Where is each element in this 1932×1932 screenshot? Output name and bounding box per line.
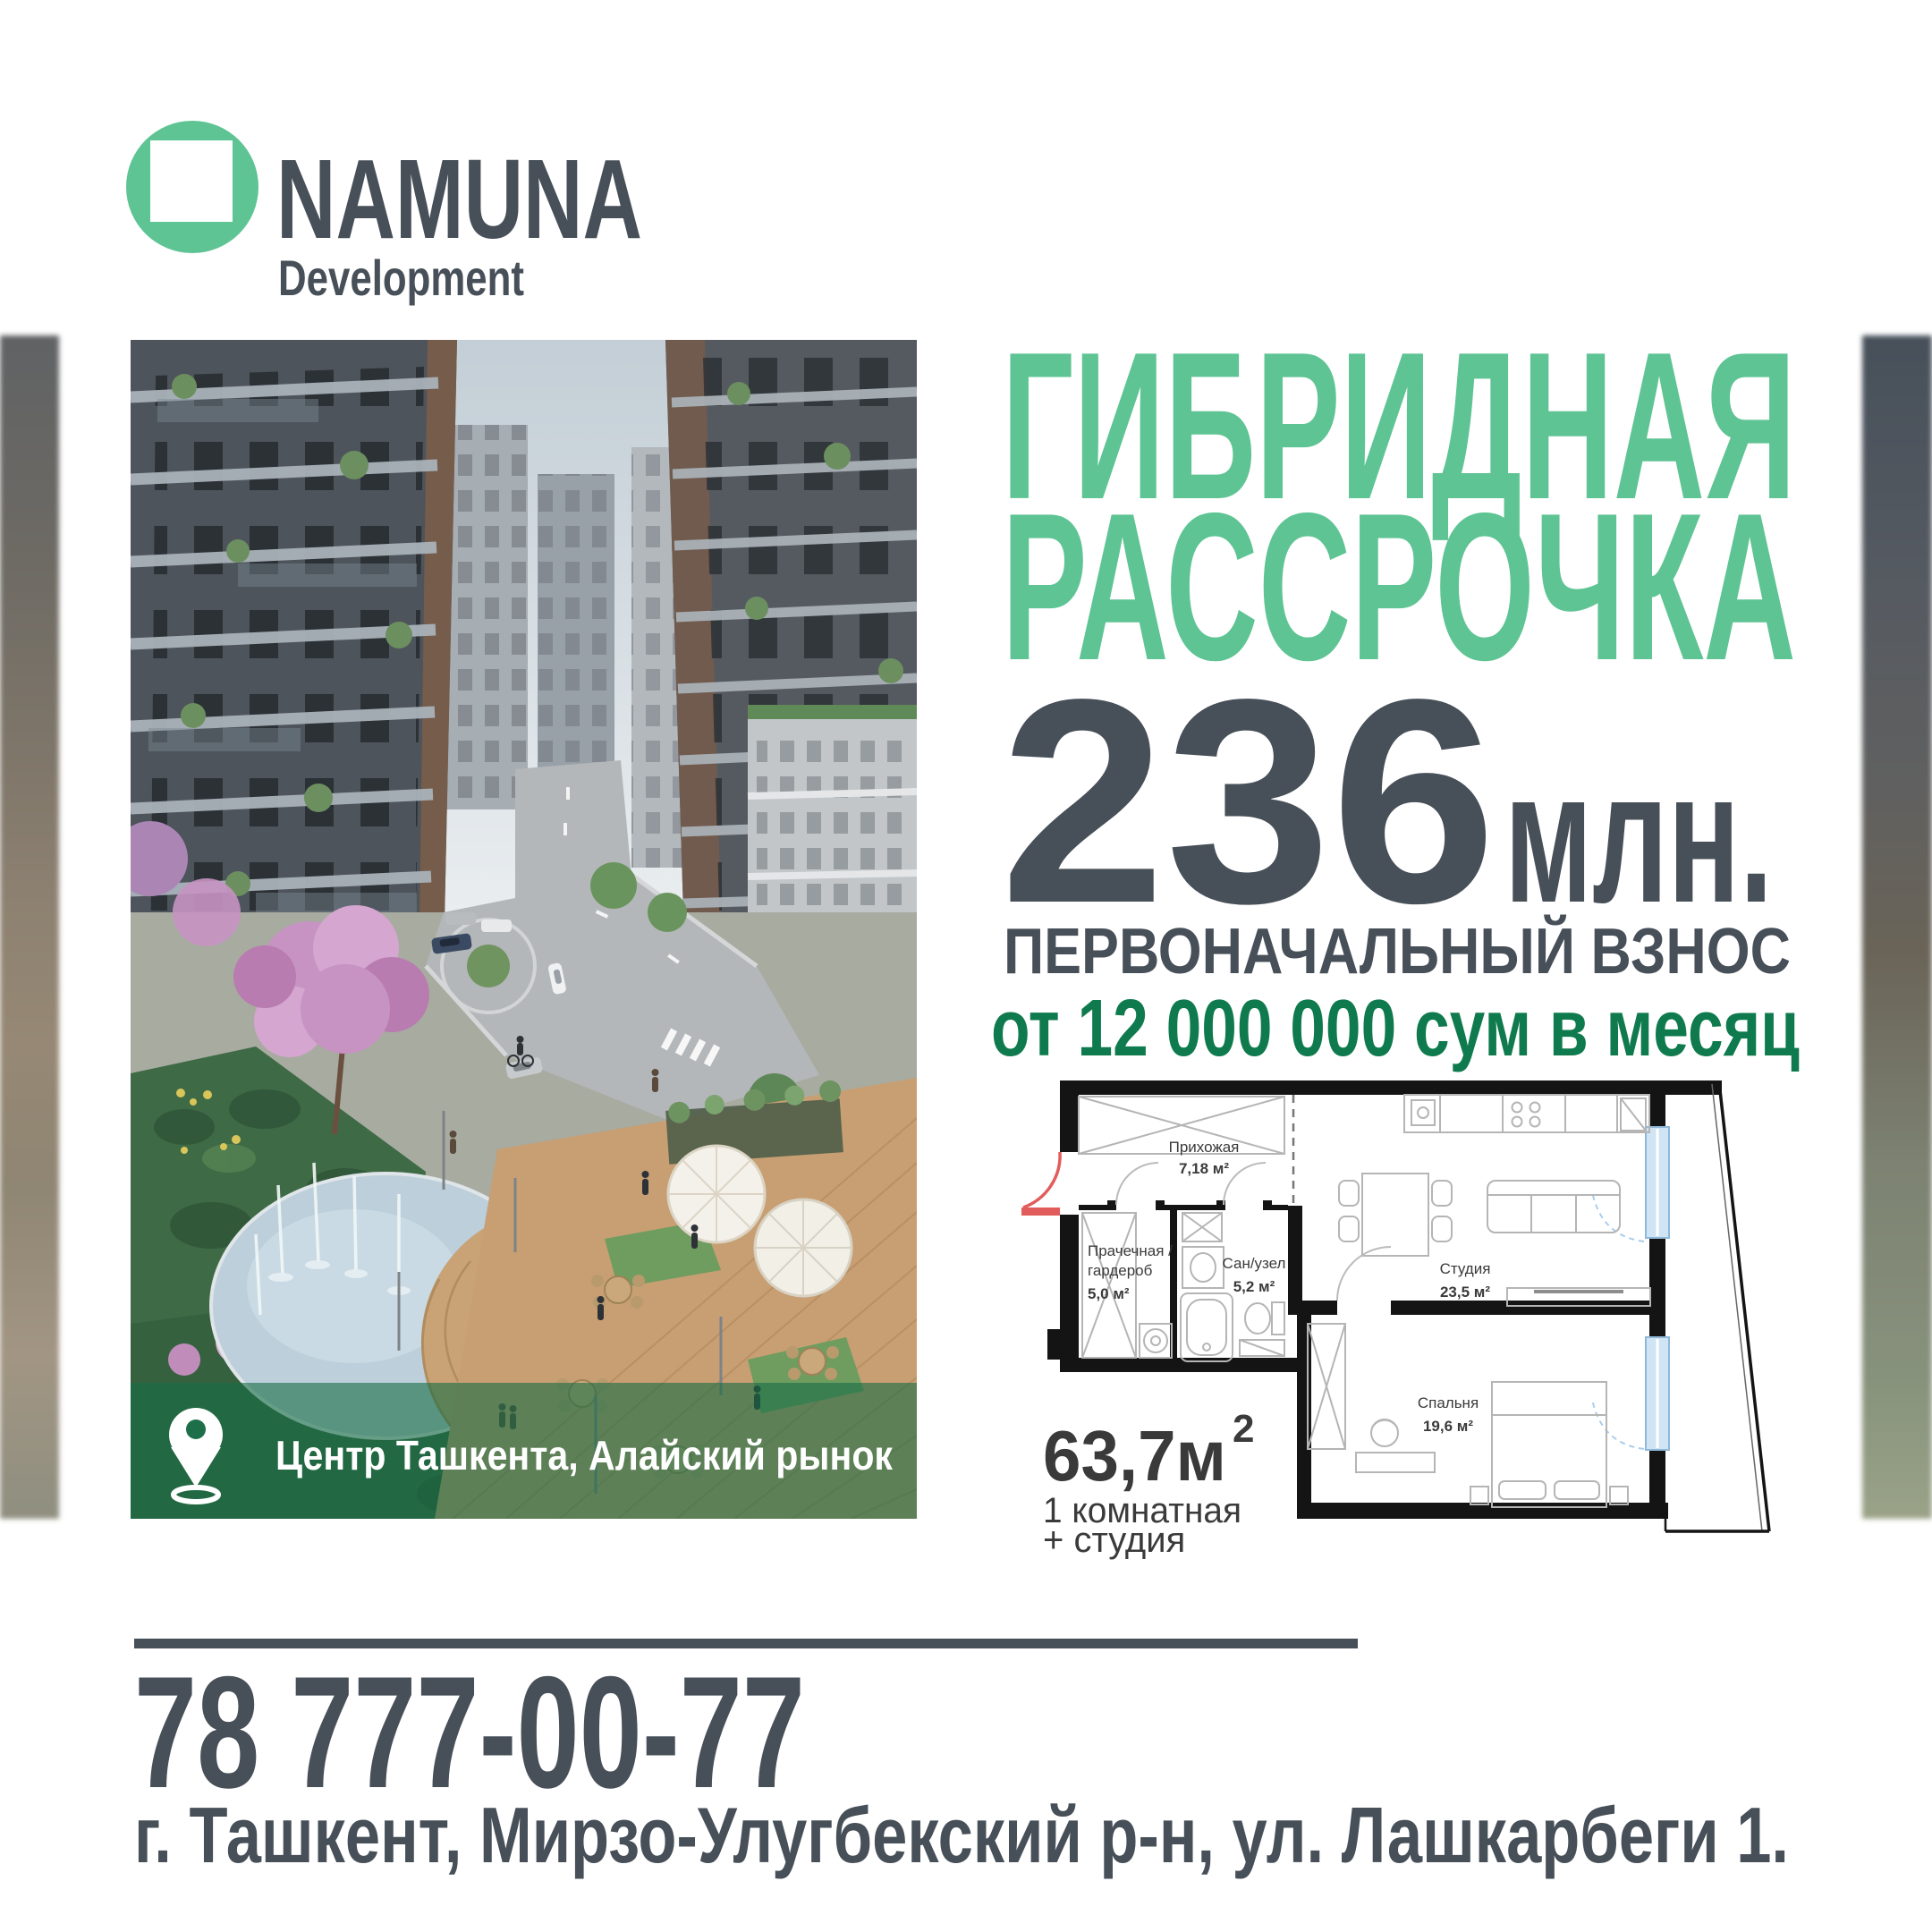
- typography-layer: NAMUNA Development ГИБРИДНАЯ РАССРОЧКА 2…: [0, 0, 1932, 1932]
- room-bath-area: 5,2 м²: [1233, 1278, 1275, 1295]
- floor-plan: Прихожая 7,18 м² Прачечная / гардероб 5,…: [1020, 1073, 1860, 1561]
- address: г. Ташкент, Мирзо-Улугбекский р-н, ул. Л…: [134, 1791, 1789, 1879]
- room-laundry-area: 5,0 м²: [1088, 1285, 1130, 1302]
- room-hall-name: Прихожая: [1169, 1139, 1240, 1156]
- price-amount: 236: [1000, 639, 1496, 963]
- plan-facade-slant: [1665, 1082, 1769, 1531]
- total-area-sup: 2: [1233, 1407, 1254, 1451]
- room-studio-name: Студия: [1440, 1260, 1491, 1277]
- monthly-payment: от 12 000 000 сум в месяц: [991, 984, 1800, 1073]
- total-area-block: 63,7м 2 1 комнатная + студия: [1043, 1407, 1254, 1560]
- total-area-value: 63,7м: [1043, 1416, 1226, 1496]
- room-hall-area: 7,18 м²: [1179, 1160, 1229, 1177]
- poster: Центр Ташкента, Алайский рынок NAMUNA De…: [0, 0, 1932, 1932]
- room-laundry-name1: Прачечная /: [1088, 1242, 1173, 1259]
- logo-brand: NAMUNA: [276, 136, 642, 262]
- down-payment-label: ПЕРВОНАЧАЛЬНЫЙ ВЗНОС: [1004, 914, 1791, 987]
- logo-subtitle: Development: [278, 250, 524, 306]
- namuna-logo-icon: [126, 121, 258, 253]
- room-bedroom-name: Спальня: [1418, 1394, 1479, 1411]
- room-laundry-name2: гардероб: [1088, 1262, 1153, 1279]
- room-bath-name: Сан/узел: [1223, 1255, 1286, 1272]
- entrance-door-icon: [1021, 1152, 1060, 1216]
- room-studio-area: 23,5 м²: [1440, 1284, 1490, 1301]
- price-unit: млн.: [1504, 732, 1773, 942]
- room-bedroom-area: 19,6 м²: [1423, 1418, 1473, 1435]
- apartment-type-line2: + студия: [1043, 1521, 1185, 1560]
